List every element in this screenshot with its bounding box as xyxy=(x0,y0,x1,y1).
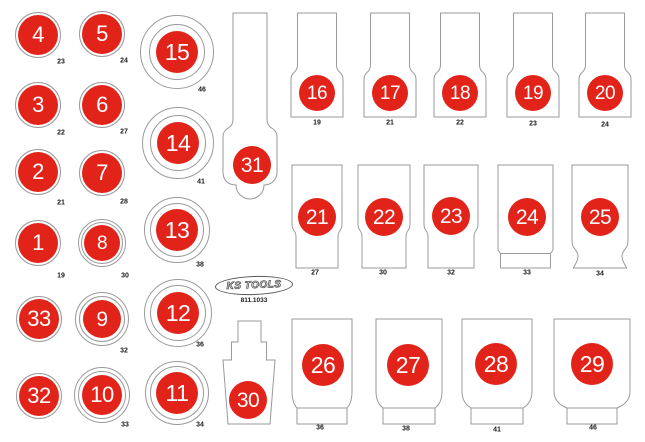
foam-inlay-canvas: 4235241546322627144122172813381198303393… xyxy=(0,0,645,442)
position-number: 31 xyxy=(241,155,263,176)
position-number-disc: 30 xyxy=(229,381,267,419)
part-number: 811.1033 xyxy=(212,297,296,304)
position-number: 30 xyxy=(237,390,259,411)
tool-cutouts-layer: 3130 xyxy=(0,0,645,442)
brand-block: KS TOOLS 811.1033 xyxy=(212,276,296,304)
ks-tools-logo: KS TOOLS xyxy=(215,275,294,297)
position-number-disc: 31 xyxy=(233,146,271,184)
ks-tools-logo-text: KS TOOLS xyxy=(226,279,281,292)
tool-31: 31 xyxy=(223,13,277,203)
tool-30: 30 xyxy=(223,321,275,424)
